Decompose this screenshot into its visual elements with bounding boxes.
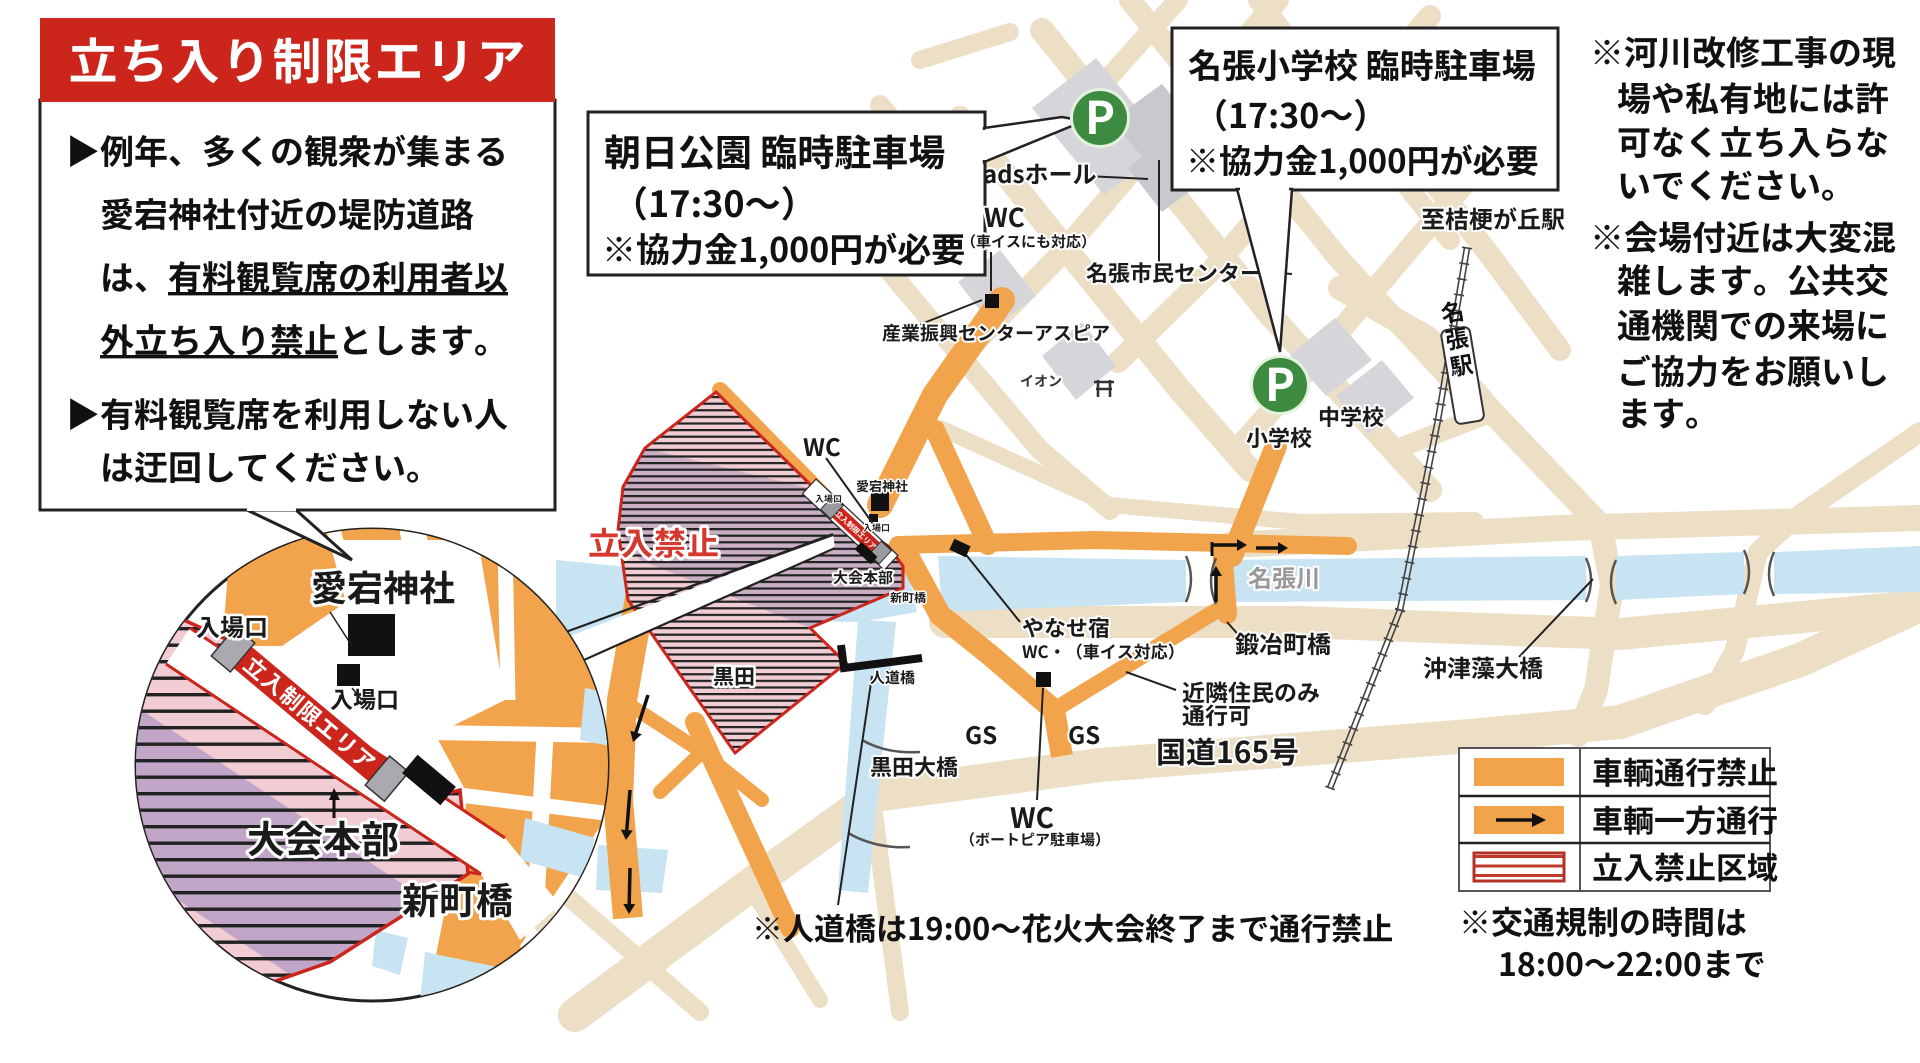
- svg-text:人道橋: 人道橋: [870, 667, 915, 688]
- svg-text:P: P: [1085, 82, 1115, 147]
- svg-text:は迂回してください。: は迂回してください。: [100, 441, 440, 490]
- svg-text:イオン: イオン: [1020, 371, 1062, 391]
- svg-text:国道165号: 国道165号: [1156, 728, 1299, 772]
- svg-text:（17:30〜）: （17:30〜）: [612, 176, 817, 228]
- svg-text:いでください。: いでください。: [1617, 159, 1855, 208]
- svg-text:朝日公園 臨時駐車場: 朝日公園 臨時駐車場: [604, 123, 945, 177]
- svg-text:中学校: 中学校: [1318, 400, 1384, 432]
- svg-text:入場口: 入場口: [863, 521, 890, 534]
- svg-text:▶例年、多くの観衆が集まる: ▶例年、多くの観衆が集まる: [66, 125, 508, 174]
- svg-text:大会本部: 大会本部: [247, 809, 399, 864]
- svg-text:（車イスにも対応）: （車イスにも対応）: [961, 231, 1096, 252]
- svg-text:沖津藻大橋: 沖津藻大橋: [1423, 649, 1543, 684]
- svg-text:可なく立ち入らな: 可なく立ち入らな: [1617, 116, 1889, 165]
- svg-text:※河川改修工事の現: ※河川改修工事の現: [1590, 26, 1896, 75]
- svg-text:WC: WC: [984, 198, 1025, 235]
- svg-text:※協力金1,000円が必要: ※協力金1,000円が必要: [602, 223, 965, 272]
- svg-text:名張小学校 臨時駐車場: 名張小学校 臨時駐車場: [1188, 39, 1536, 88]
- svg-text:車輌通行禁止: 車輌通行禁止: [1592, 748, 1778, 793]
- svg-text:黒田: 黒田: [713, 661, 755, 691]
- svg-text:大会本部: 大会本部: [833, 567, 893, 588]
- svg-text:※人道橋は19:00〜花火大会終了まで通行禁止: ※人道橋は19:00〜花火大会終了まで通行禁止: [752, 904, 1393, 949]
- svg-text:立入禁止: 立入禁止: [588, 519, 720, 565]
- svg-text:GS: GS: [965, 716, 997, 751]
- svg-text:雑します。公共交: 雑します。公共交: [1617, 254, 1889, 303]
- svg-text:新町橋: 新町橋: [402, 871, 513, 925]
- svg-text:（ボートピア駐車場）: （ボートピア駐車場）: [960, 829, 1110, 850]
- svg-text:通行可: 通行可: [1182, 697, 1251, 731]
- svg-text:愛宕神社付近の堤防道路: 愛宕神社付近の堤防道路: [100, 188, 474, 237]
- svg-text:ます。: ます。: [1617, 387, 1719, 436]
- svg-text:小学校: 小学校: [1246, 421, 1312, 453]
- svg-text:愛宕神社: 愛宕神社: [856, 476, 908, 495]
- svg-text:新町橋: 新町橋: [890, 589, 926, 606]
- svg-text:入場口: 入場口: [330, 681, 399, 715]
- svg-text:WC・（車イス対応）: WC・（車イス対応）: [1022, 638, 1185, 663]
- svg-text:※協力金1,000円が必要: ※協力金1,000円が必要: [1186, 135, 1539, 183]
- svg-text:adsホール: adsホール: [983, 155, 1097, 190]
- svg-text:は、有料観覧席の利用者以: は、有料観覧席の利用者以: [100, 251, 508, 300]
- svg-text:外立ち入り禁止とします。: 外立ち入り禁止とします。: [100, 314, 508, 363]
- svg-text:至桔梗が丘駅: 至桔梗が丘駅: [1421, 200, 1565, 235]
- svg-text:立入禁止区域: 立入禁止区域: [1592, 843, 1778, 888]
- svg-text:P: P: [1265, 349, 1295, 414]
- svg-text:※交通規制の時間は: ※交通規制の時間は: [1459, 898, 1747, 944]
- svg-text:入場口: 入場口: [196, 608, 268, 643]
- svg-text:車輌一方通行: 車輌一方通行: [1592, 796, 1778, 841]
- svg-text:産業振興センターアスピア: 産業振興センターアスピア: [882, 319, 1110, 346]
- svg-text:※会場付近は大変混: ※会場付近は大変混: [1590, 211, 1896, 260]
- svg-text:（17:30〜）: （17:30〜）: [1194, 89, 1387, 138]
- svg-text:愛宕神社: 愛宕神社: [311, 560, 455, 612]
- svg-text:立ち入り制限エリア: 立ち入り制限エリア: [68, 23, 527, 94]
- svg-text:入場口: 入場口: [815, 492, 842, 505]
- svg-text:通機関での来場に: 通機関での来場に: [1617, 299, 1889, 348]
- svg-text:名張川: 名張川: [1248, 559, 1320, 594]
- svg-text:GS: GS: [1068, 716, 1100, 751]
- svg-text:▶有料観覧席を利用しない人: ▶有料観覧席を利用しない人: [66, 388, 508, 437]
- svg-text:18:00〜22:00まで: 18:00〜22:00まで: [1498, 940, 1766, 986]
- svg-text:黒田大橋: 黒田大橋: [870, 750, 958, 782]
- svg-text:名張市民センター: 名張市民センター: [1086, 256, 1262, 288]
- svg-text:WC: WC: [803, 428, 841, 463]
- svg-text:鍛冶町橋: 鍛冶町橋: [1235, 625, 1331, 660]
- svg-text:場や私有地には許: 場や私有地には許: [1617, 72, 1889, 121]
